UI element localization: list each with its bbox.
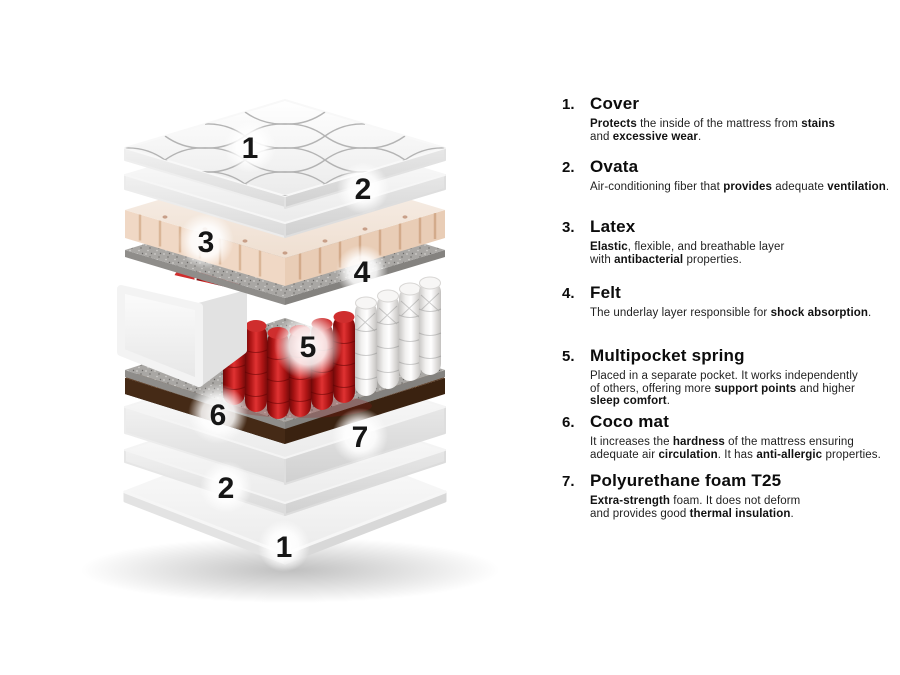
legend-item-title: Ovata [590,157,889,176]
legend-item-body: Coco matIt increases the hardness of the… [590,412,881,461]
legend-item-body: CoverProtects the inside of the mattress… [590,94,835,143]
legend-item-title: Multipocket spring [590,346,858,365]
legend-item-number: 2. [562,157,583,194]
legend-item-number: 3. [562,217,583,266]
legend-item-number: 7. [562,471,583,520]
legend-item-ovata: 2.OvataAir-conditioning fiber that provi… [562,157,889,194]
legend-item-title: Latex [590,217,784,236]
legend-item-coco-mat: 6.Coco matIt increases the hardness of t… [562,412,881,461]
legend: 1.CoverProtects the inside of the mattre… [0,0,900,675]
legend-item-title: Polyurethane foam T25 [590,471,800,490]
legend-item-description: Air-conditioning fiber that provides ade… [590,181,889,194]
legend-item-number: 6. [562,412,583,461]
legend-item-title: Felt [590,283,871,302]
legend-item-body: LatexElastic, flexible, and breathable l… [590,217,784,266]
legend-item-polyurethane-foam-t25: 7.Polyurethane foam T25Extra-strength fo… [562,471,800,520]
legend-item-title: Coco mat [590,412,881,431]
legend-item-number: 4. [562,283,583,320]
legend-item-description: Protects the inside of the mattress from… [590,118,835,143]
legend-item-description: The underlay layer responsible for shock… [590,307,871,320]
legend-item-body: OvataAir-conditioning fiber that provide… [590,157,889,194]
legend-item-number: 1. [562,94,583,143]
legend-item-description: Elastic, flexible, and breathable layerw… [590,241,784,266]
legend-item-description: Extra-strength foam. It does not deforma… [590,495,800,520]
legend-item-latex: 3.LatexElastic, flexible, and breathable… [562,217,784,266]
legend-item-description: Placed in a separate pocket. It works in… [590,370,858,408]
legend-item-description: It increases the hardness of the mattres… [590,436,881,461]
legend-item-title: Cover [590,94,835,113]
legend-item-body: Polyurethane foam T25Extra-strength foam… [590,471,800,520]
legend-item-body: Multipocket springPlaced in a separate p… [590,346,858,408]
legend-item-number: 5. [562,346,583,408]
legend-item-multipocket-spring: 5.Multipocket springPlaced in a separate… [562,346,858,408]
legend-item-felt: 4.FeltThe underlay layer responsible for… [562,283,871,320]
infographic-stage: 123456721 1.CoverProtects the inside of … [0,0,900,675]
legend-item-cover: 1.CoverProtects the inside of the mattre… [562,94,835,143]
legend-item-body: FeltThe underlay layer responsible for s… [590,283,871,320]
